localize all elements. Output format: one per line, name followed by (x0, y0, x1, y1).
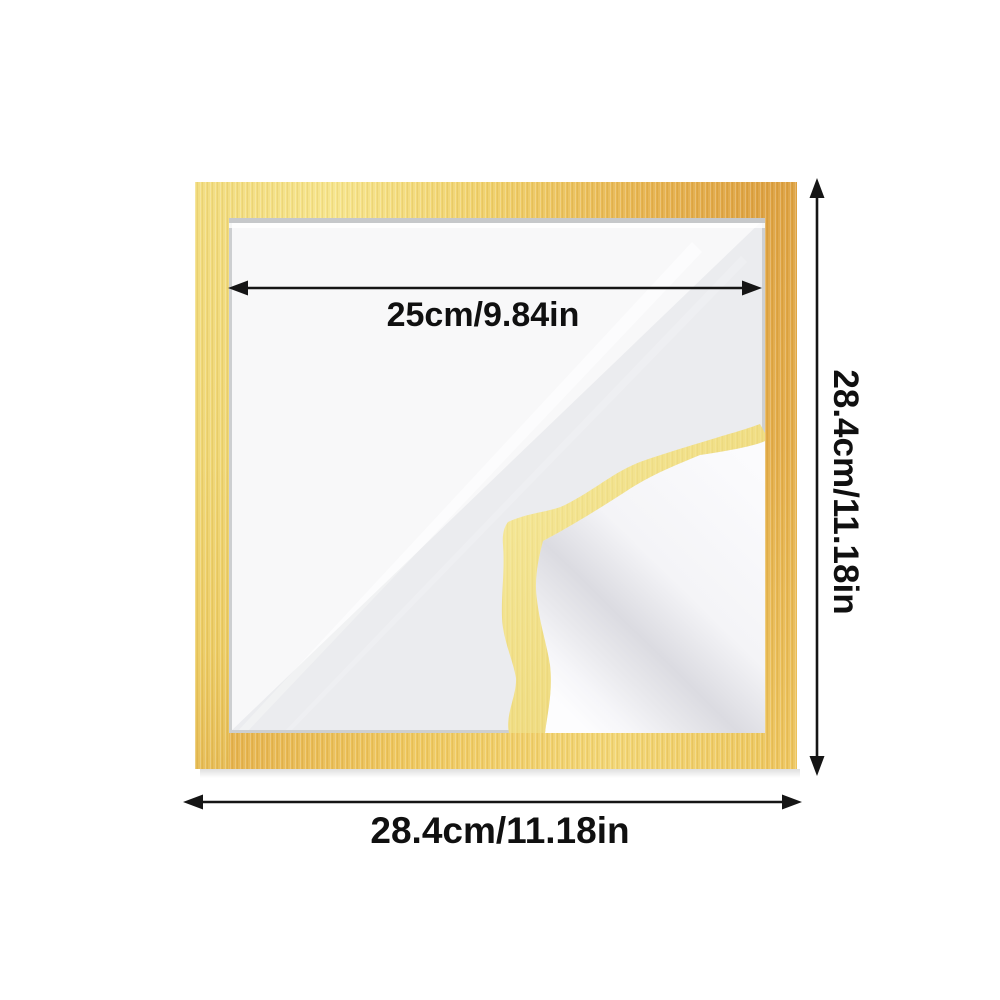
inner-width-label: 25cm/9.84in (387, 296, 580, 335)
height-label: 28.4cm/11.18in (825, 369, 865, 614)
outer-width-arrow (183, 795, 802, 810)
product-dimension-image: 25cm/9.84in 28.4cm/11.18in 28.4cm/11.18i… (0, 0, 1000, 1000)
outer-width-label: 28.4cm/11.18in (370, 810, 629, 852)
frame-drop-shadow (200, 769, 800, 778)
height-arrow (810, 178, 825, 776)
